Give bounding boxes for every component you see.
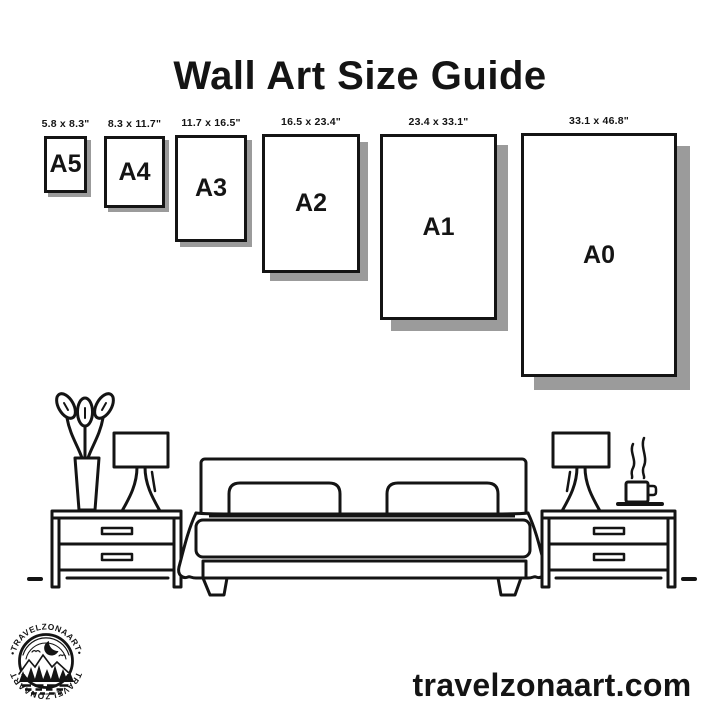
- paper-box: A5: [44, 136, 87, 193]
- plant-vase: [53, 391, 117, 510]
- drawer-handle: [102, 554, 132, 560]
- lamp-stem: [585, 467, 600, 511]
- size-dimensions-label: 33.1 x 46.8": [569, 114, 629, 133]
- steam: [632, 444, 635, 478]
- paper-A0: 33.1 x 46.8" A0: [521, 114, 677, 377]
- table-lamp-right: [553, 433, 609, 511]
- nightstand-right: [542, 511, 675, 587]
- paper-A3: 11.7 x 16.5" A3: [175, 116, 247, 242]
- paper-box: A4: [104, 136, 165, 208]
- website-url: travelzonaart.com: [402, 667, 702, 704]
- table-lamp-left: [114, 433, 168, 511]
- bed: [179, 459, 546, 595]
- bed-base: [203, 561, 526, 578]
- steam: [643, 438, 645, 478]
- pillow-left: [229, 483, 340, 514]
- paper-size-name: A3: [195, 174, 227, 203]
- size-dimensions-label: 11.7 x 16.5": [181, 116, 240, 135]
- brand-logo-badge: •TRAVELZONAART• TRAVELZONAART: [6, 619, 86, 703]
- lamp-shade: [114, 433, 168, 467]
- size-dimensions-label: 16.5 x 23.4": [281, 115, 341, 134]
- size-dimensions-label: 23.4 x 33.1": [409, 115, 469, 134]
- paper-box: A2: [262, 134, 360, 273]
- paper-A5: 5.8 x 8.3" A5: [44, 117, 87, 193]
- paper-size-name: A1: [423, 213, 455, 242]
- sheet-top-line: [196, 513, 528, 514]
- nightstand-left: [52, 511, 181, 587]
- size-dimensions-label: 8.3 x 11.7": [108, 117, 161, 136]
- vase: [75, 458, 99, 510]
- page-title: Wall Art Size Guide: [0, 54, 720, 99]
- mattress: [196, 520, 530, 557]
- paper-box: A1: [380, 134, 497, 320]
- paper-box: A3: [175, 135, 247, 242]
- lamp-stem: [122, 467, 137, 511]
- pillow-right: [387, 483, 498, 514]
- lamp-stem-detail: [152, 472, 155, 491]
- drawer-handle: [102, 528, 132, 534]
- coffee-mug: [618, 438, 662, 504]
- wall-art-size-guide-page: { "title": "Wall Art Size Guide", "paper…: [0, 0, 720, 720]
- bedroom-illustration: [0, 380, 720, 600]
- paper-box: A0: [521, 133, 677, 377]
- paper-size-name: A5: [50, 150, 82, 179]
- lamp-stem-detail: [567, 472, 570, 491]
- bed-leg-left: [203, 578, 227, 595]
- paper-size-name: A4: [119, 158, 151, 187]
- size-dimensions-label: 5.8 x 8.3": [42, 117, 90, 136]
- paper-A1: 23.4 x 33.1" A1: [380, 115, 497, 320]
- paper-A2: 16.5 x 23.4" A2: [262, 115, 360, 273]
- paper-A4: 8.3 x 11.7" A4: [104, 117, 165, 208]
- paper-size-name: A0: [583, 241, 615, 270]
- drawer-handle: [594, 528, 624, 534]
- lamp-shade: [553, 433, 609, 467]
- bed-leg-right: [498, 578, 521, 595]
- paper-size-name: A2: [295, 189, 327, 218]
- mug-body: [626, 482, 648, 502]
- drawer-handle: [594, 554, 624, 560]
